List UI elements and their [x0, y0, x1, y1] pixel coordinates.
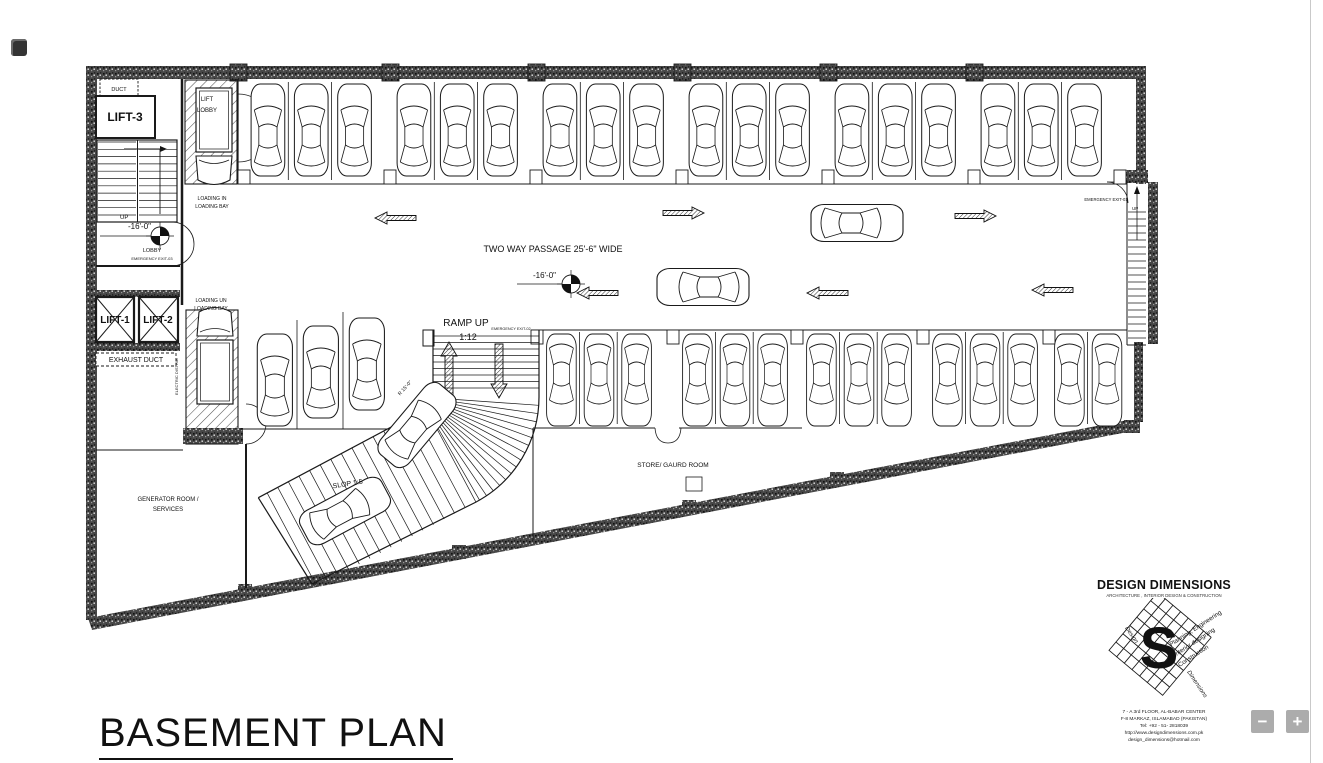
store-guard-label: STORE/ GAURD ROOM [637, 462, 708, 469]
emergency-exit-02-label: EMERGENCY EXIT-02 [491, 327, 530, 331]
firm-address: 7 - A 3rd FLOOR, AL-BABAR CENTER F-8 MAR… [1095, 709, 1233, 744]
parked-car [303, 326, 338, 418]
wall-bottom-diagonal [88, 420, 1133, 630]
parked-car [257, 334, 292, 426]
lift-lobby-label-1: LIFT [201, 97, 214, 103]
zoom-out-button[interactable]: − [1251, 710, 1274, 733]
loading-un-label-2: LOADING BAY [194, 306, 228, 312]
parked-car [970, 334, 1000, 426]
address-line-2: F-8 MARKAZ, ISLAMABAD (PAKISTAN) [1095, 716, 1233, 723]
parked-car [776, 84, 810, 176]
zoom-in-button[interactable]: + [1286, 710, 1309, 733]
generator-room-label-1: GENERATOR ROOM / [137, 497, 198, 503]
parked-car [1055, 334, 1085, 426]
generator-room-label-2: SERVICES [153, 507, 183, 513]
traffic-arrow-left [807, 287, 848, 299]
truck-loading-bay-2 [197, 308, 233, 405]
parked-car [294, 84, 328, 176]
parked-car [547, 334, 577, 426]
exhaust-duct-label: EXHAUST DUCT [109, 357, 164, 364]
parked-car [689, 84, 723, 176]
up-left-label: UP [120, 215, 128, 221]
parked-car [835, 84, 869, 176]
lobby-label: LOBBY [143, 248, 162, 254]
firm-logo: S Design Dimensions Planning, Engineerin… [1095, 598, 1233, 702]
lift-lobby-label-2: LOBBY [197, 108, 217, 114]
loading-in-label-2: LOADING BAY [195, 204, 229, 210]
parked-car [584, 334, 614, 426]
parked-car [1092, 334, 1122, 426]
column [452, 545, 466, 559]
level-left-label: -16'-0" [128, 222, 151, 231]
parked-car [732, 84, 766, 176]
store-door [655, 428, 668, 443]
parked-car [1008, 334, 1038, 426]
ramp-gradient-label: 1:12 [459, 332, 477, 342]
lift3-label: LIFT-3 [107, 110, 143, 124]
up-right-label: UP [1132, 206, 1138, 211]
address-line-1: 7 - A 3rd FLOOR, AL-BABAR CENTER [1095, 709, 1233, 716]
two-way-passage-label: TWO WAY PASSAGE 25'-6" WIDE [483, 244, 622, 254]
column [830, 472, 844, 486]
loading-in-label-1: LOADING IN [198, 196, 227, 202]
traffic-arrow-left [375, 212, 416, 224]
wall-right-stair [1148, 182, 1158, 344]
parked-car [586, 84, 620, 176]
duct-label: DUCT [111, 87, 127, 93]
titleblock: DESIGN DIMENSIONS ARCHITECTURE , INTERIO… [1095, 578, 1233, 744]
parked-car [440, 84, 474, 176]
parked-car [807, 334, 837, 426]
page-title: BASEMENT PLAN [99, 712, 453, 760]
address-line-4: http://www.designdimensions.com.pk [1095, 730, 1233, 737]
parked-car [758, 334, 788, 426]
ramp-down-arrow [491, 344, 507, 398]
parked-car [543, 84, 577, 176]
parked-car [683, 334, 713, 426]
store-fixture [686, 477, 702, 491]
parked-car [981, 84, 1015, 176]
car-driving-right [811, 205, 903, 242]
passage-markings [100, 205, 1073, 306]
electric-room-label: ELECTRIC DISTRIB [174, 358, 179, 395]
ramp-radius-label: R 15'-0" [397, 380, 413, 397]
firm-name: DESIGN DIMENSIONS [1095, 578, 1233, 592]
car-driving-left [657, 269, 749, 306]
screen-artifact [11, 39, 27, 56]
level-center-label: -16'-0" [533, 271, 556, 280]
address-line-5: design_dimensions@hotmail.com [1095, 737, 1233, 744]
parked-car [349, 318, 384, 410]
traffic-arrow-left [1032, 284, 1073, 296]
parked-car [630, 84, 664, 176]
page-edge-divider [1310, 0, 1311, 763]
parked-car [397, 84, 431, 176]
loading-un-label-1: LOADING UN [195, 298, 227, 304]
lift1-label: LIFT-1 [100, 315, 130, 326]
parked-car [1024, 84, 1058, 176]
traffic-arrow-right [663, 207, 704, 219]
parked-car [720, 334, 750, 426]
lift2-label: LIFT-2 [143, 315, 173, 326]
parked-car [844, 334, 874, 426]
traffic-arrow-left [577, 287, 618, 299]
parked-car [922, 84, 956, 176]
parked-car [251, 84, 285, 176]
parked-cars-top-row [251, 84, 1101, 176]
logo-word-design: Design [1123, 626, 1139, 645]
address-line-3: Tel: +92 - 51- 2818039 [1095, 723, 1233, 730]
emergency-exit-01-label: EMERGENCY EXIT-01 [1084, 197, 1128, 202]
parked-car [484, 84, 518, 176]
logo-letter: S [1140, 616, 1179, 681]
car-on-ramp [373, 378, 460, 472]
traffic-arrow-right [955, 210, 996, 222]
parked-cars-bottom-row [257, 318, 1122, 426]
logo-word-dimensions: Dimensions [1185, 670, 1208, 699]
column [682, 500, 696, 514]
drawing-canvas: DUCT LIFT-3 LIFT LOBBY UP -16'-0" LOBBY … [0, 0, 1323, 763]
loading-trucks [196, 88, 233, 404]
ramp-up-label: RAMP UP [443, 318, 489, 329]
stair-left [98, 140, 177, 222]
parked-car [882, 334, 912, 426]
parked-car [338, 84, 372, 176]
parked-car [878, 84, 912, 176]
parked-car [622, 334, 652, 426]
parked-car [1068, 84, 1102, 176]
wall-right-upper [1136, 66, 1146, 184]
emergency-exit-03-label: EMERGENCY EXIT-03 [131, 256, 173, 261]
parked-car [933, 334, 963, 426]
